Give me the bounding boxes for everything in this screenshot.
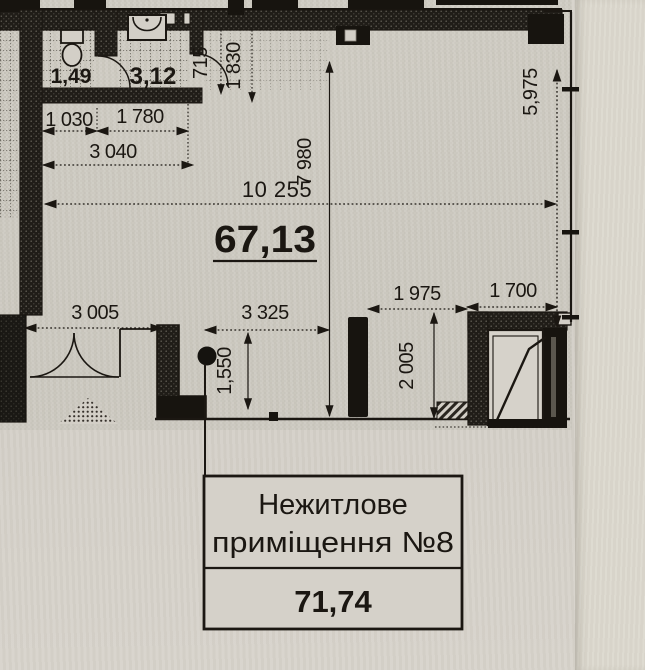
pier-bar [348,317,368,417]
dim-3325-label: 3 325 [241,302,289,324]
dim-1830-label: 1 830 [223,42,245,90]
premises-label-box: Нежитлове приміщення №8 71,74 [204,476,462,629]
toilet-icon [61,30,83,66]
dim-715-label: 715 [190,47,212,79]
dim-1780-label: 1 780 [116,106,164,128]
dim-3005-label: 3 005 [71,302,119,324]
dim-5975-label: 5,975 [520,68,542,116]
floor-plan: 1 030 1 780 3 040 10 255 715 1 830 7 980… [0,0,645,670]
dim-7980-label: 7 980 [294,138,316,186]
premises-area-value: 71,74 [294,584,372,619]
pilaster-duct [336,26,370,45]
main-room-area-label: 67,13 [214,219,316,261]
wc-area-label: 1,49 [51,65,92,88]
premises-label-line2: приміщення №8 [212,527,454,559]
sink-icon [128,15,166,40]
window-sill [437,402,470,419]
dim-1700-label: 1 700 [489,280,537,302]
dim-1550-label: 1,550 [214,347,236,395]
dim-2005-label: 2 005 [396,342,418,390]
dim-3040-label: 3 040 [89,141,137,163]
bath-area-label: 3,12 [130,63,177,90]
dim-1975-label: 1 975 [393,283,441,305]
dim-1030-label: 1 030 [45,109,93,131]
premises-label-line1: Нежитлове [258,489,408,521]
entrance-pier [0,315,26,422]
left-wall [20,10,42,315]
